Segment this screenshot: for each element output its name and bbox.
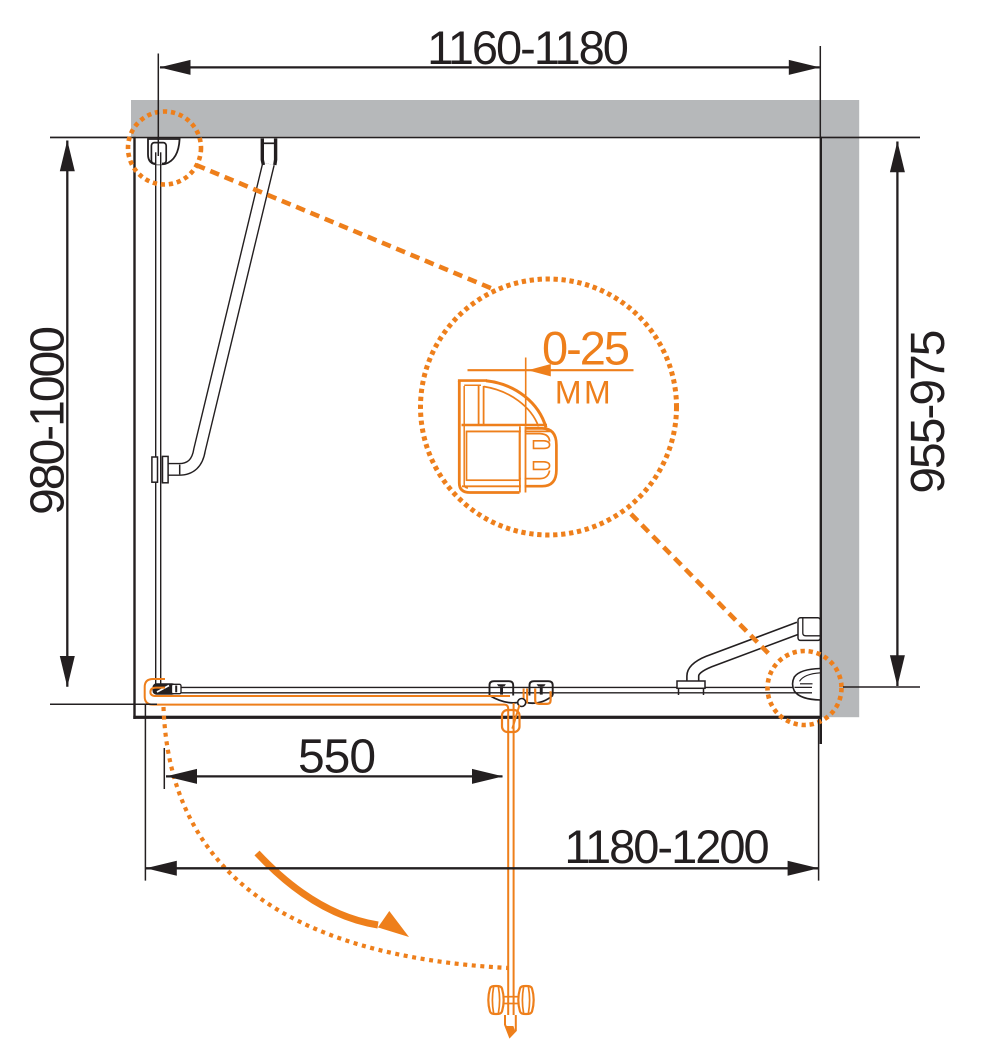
svg-text:1160-1180: 1160-1180 xyxy=(427,21,628,74)
svg-text:0-25: 0-25 xyxy=(542,322,629,375)
svg-text:1180-1200: 1180-1200 xyxy=(564,820,768,873)
svg-text:550: 550 xyxy=(298,731,375,784)
svg-text:980-1000: 980-1000 xyxy=(22,328,75,515)
svg-text:955-975: 955-975 xyxy=(902,331,955,493)
svg-text:MM: MM xyxy=(555,375,613,411)
